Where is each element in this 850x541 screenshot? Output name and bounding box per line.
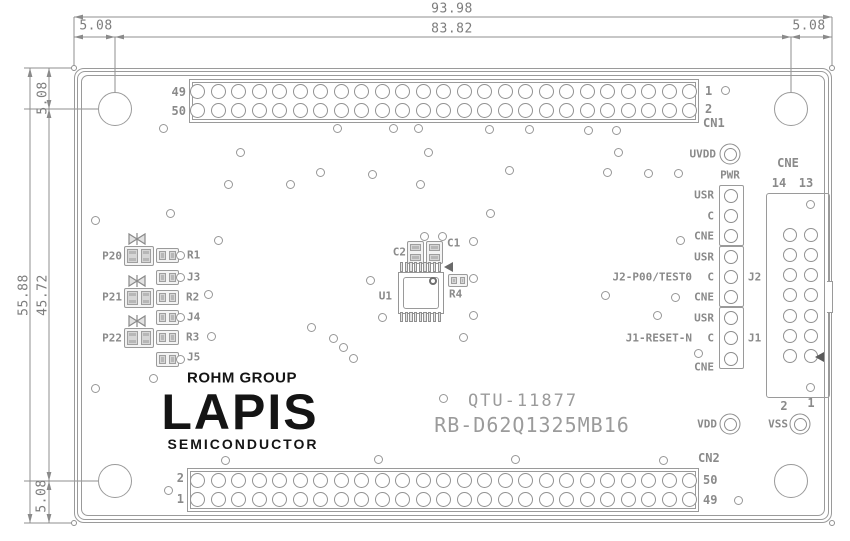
pad [169, 333, 176, 342]
via-hole [221, 456, 230, 465]
u1-ic-body [398, 272, 444, 314]
via-hole [164, 486, 173, 495]
via-hole [214, 236, 223, 245]
pad [410, 244, 421, 251]
pin-hole [433, 312, 436, 322]
pin-hole [428, 262, 431, 272]
pad [159, 313, 166, 322]
j5-label: J5 [187, 351, 200, 364]
via-hole [286, 180, 295, 189]
via-hole [91, 216, 100, 225]
pin-hole [400, 312, 403, 322]
pin-hole [419, 312, 422, 322]
lapis-logo-text: LAPIS [161, 383, 318, 441]
pin-hole [423, 312, 426, 322]
p21-label: P21 [102, 291, 122, 304]
via-hole [614, 148, 623, 157]
via-hole [603, 168, 612, 177]
pad [159, 251, 166, 260]
via-hole [316, 168, 325, 177]
pad [127, 291, 138, 305]
pad [159, 355, 166, 364]
r3-label: R3 [186, 331, 199, 344]
u1-pins-top [400, 262, 442, 272]
r4-polarity-arrow-icon [444, 262, 453, 272]
pin-hole [428, 312, 431, 322]
pin-hole [423, 262, 426, 272]
pad [159, 293, 166, 302]
pad [159, 273, 166, 282]
via-hole [149, 374, 158, 383]
pin-hole [438, 262, 441, 272]
pad [141, 291, 152, 305]
via-hole [505, 166, 514, 175]
via-hole [734, 496, 743, 505]
r2-footprint [156, 290, 179, 305]
via-hole [207, 332, 216, 341]
c2-label: C2 [393, 246, 406, 259]
board-model-number: RB-D62Q1325MB16 [434, 413, 630, 437]
p22-led-footprint [124, 328, 154, 348]
via-hole [694, 349, 703, 358]
via-hole [525, 125, 534, 134]
j4-label: J4 [187, 311, 200, 324]
via-hole [653, 311, 662, 320]
via-hole [176, 251, 185, 260]
via-hole [721, 86, 730, 95]
pad [169, 273, 176, 282]
u1-pins-bottom [400, 312, 442, 322]
via-hole [584, 126, 593, 135]
c2-footprint [407, 241, 424, 264]
via-hole [469, 237, 478, 246]
via-hole [176, 355, 185, 364]
via-hole [511, 455, 520, 464]
via-hole [439, 394, 448, 403]
board-part-number: QTU-11877 [468, 391, 578, 411]
via-hole [368, 170, 377, 179]
via-hole [671, 293, 680, 302]
p20-label: P20 [102, 250, 122, 263]
via-hole [236, 148, 245, 157]
via-hole [644, 169, 653, 178]
via-hole [806, 200, 815, 209]
j3-label: J3 [187, 271, 200, 284]
pad [451, 277, 457, 284]
p21-led-footprint [124, 288, 154, 308]
pad [159, 333, 166, 342]
pad [460, 277, 466, 284]
via-hole [366, 276, 375, 285]
via-hole [416, 180, 425, 189]
pad [410, 254, 421, 261]
semiconductor-logo-text: SEMICONDUCTOR [168, 436, 319, 452]
p20-led-footprint [124, 246, 154, 266]
pin-hole [419, 262, 422, 272]
pin-hole [409, 262, 412, 272]
pad [127, 249, 138, 263]
via-hole [674, 169, 683, 178]
via-hole [659, 456, 668, 465]
via-hole [166, 209, 175, 218]
pin-hole [414, 312, 417, 322]
via-hole [469, 274, 478, 283]
via-hole [333, 124, 342, 133]
via-hole [339, 343, 348, 352]
via-hole [486, 209, 495, 218]
via-hole [485, 125, 494, 134]
via-hole [329, 334, 338, 343]
r4-label: R4 [449, 288, 462, 301]
via-hole [349, 354, 358, 363]
via-hole [414, 124, 423, 133]
via-hole [601, 291, 610, 300]
via-hole [224, 180, 233, 189]
via-hole [806, 383, 815, 392]
pad [169, 355, 176, 364]
via-hole [374, 455, 383, 464]
via-hole [420, 232, 429, 241]
p22-label: P22 [102, 332, 122, 345]
pin-hole [438, 312, 441, 322]
r4-footprint [448, 274, 468, 287]
via-hole [612, 126, 621, 135]
u1-label: U1 [379, 290, 392, 303]
via-hole [307, 323, 316, 332]
pad [141, 331, 152, 345]
u1-pin1-marker [429, 277, 437, 285]
r2-label: R2 [186, 291, 199, 304]
via-hole [459, 333, 468, 342]
pad [169, 293, 176, 302]
pin-hole [400, 262, 403, 272]
via-hole [91, 384, 100, 393]
c1-footprint [426, 241, 443, 264]
pad [429, 254, 440, 261]
via-hole [204, 290, 213, 299]
via-hole [176, 313, 185, 322]
r1-label: R1 [187, 249, 200, 262]
pin-hole [414, 262, 417, 272]
via-hole [176, 273, 185, 282]
pad [169, 313, 176, 322]
pad [127, 331, 138, 345]
pin-hole [405, 312, 408, 322]
via-hole [159, 124, 168, 133]
pin-hole [409, 312, 412, 322]
via-hole [389, 124, 398, 133]
via-hole [438, 232, 447, 241]
via-hole [424, 148, 433, 157]
r3-footprint [156, 330, 179, 345]
via-hole [676, 236, 685, 245]
pad [429, 244, 440, 251]
pin-hole [405, 262, 408, 272]
c1-label: C1 [447, 237, 460, 250]
via-hole [469, 311, 478, 320]
via-hole [378, 313, 387, 322]
pad [169, 251, 176, 260]
pcb-assembly-drawing: 93.98 83.82 5.08 5.08 55.88 45.72 5.08 5… [0, 0, 850, 541]
pad [141, 249, 152, 263]
pin-hole [433, 262, 436, 272]
